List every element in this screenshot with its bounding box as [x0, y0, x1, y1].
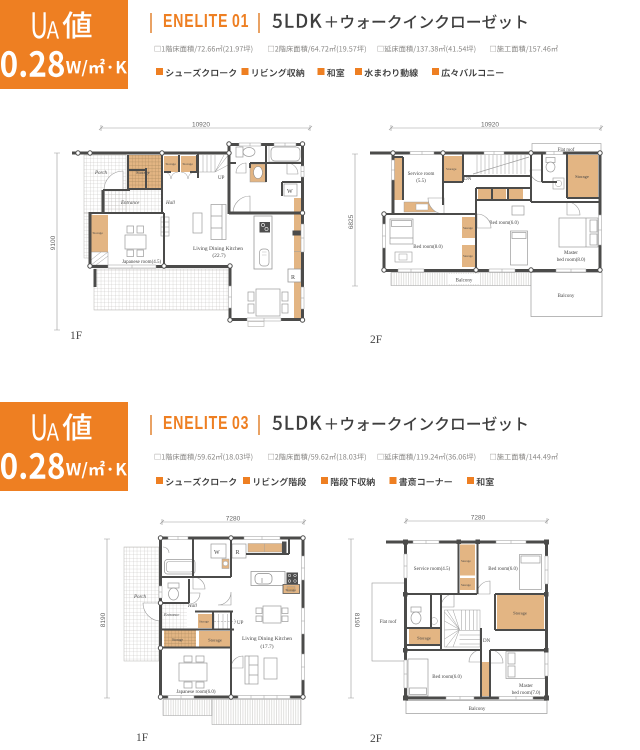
svg-text:Balcony: Balcony — [558, 294, 575, 299]
svg-text:Storage: Storage — [93, 231, 104, 235]
svg-text:Service room(4.5): Service room(4.5) — [414, 567, 451, 572]
svg-text:DN: DN — [464, 177, 472, 182]
svg-text:UP: UP — [218, 176, 225, 181]
svg-text:W: W — [287, 189, 293, 195]
svg-text:W: W — [214, 550, 220, 556]
svg-text:Storage: Storage — [446, 167, 457, 171]
svg-text:Hall: Hall — [165, 201, 176, 206]
svg-text:10920: 10920 — [481, 122, 499, 129]
svg-text:bed room(8.0): bed room(8.0) — [557, 258, 586, 263]
svg-text:2F: 2F — [370, 733, 382, 745]
svg-text:1F: 1F — [136, 732, 148, 744]
svg-text:8190: 8190 — [100, 612, 107, 627]
svg-text:Entrance: Entrance — [163, 612, 179, 617]
svg-text:(17.7): (17.7) — [260, 643, 273, 650]
svg-text:Storage: Storage — [286, 588, 297, 592]
svg-text:Porch: Porch — [133, 595, 147, 600]
svg-text:Living Dining Kitchen: Living Dining Kitchen — [242, 636, 292, 642]
svg-text:Bed room(6.0): Bed room(6.0) — [432, 675, 462, 680]
svg-text:Master: Master — [564, 251, 578, 256]
svg-text:(22.7): (22.7) — [212, 252, 225, 259]
svg-text:Bed room(8.0): Bed room(8.0) — [413, 245, 443, 250]
svg-text:Storage: Storage — [166, 162, 177, 166]
svg-text:Balcony: Balcony — [469, 707, 486, 712]
svg-text:9100: 9100 — [50, 235, 57, 250]
svg-text:Japanese room(6.0): Japanese room(6.0) — [176, 690, 215, 695]
svg-text:7280: 7280 — [471, 515, 486, 522]
svg-text:Storage: Storage — [183, 162, 194, 166]
svg-text:Living Dining Kitchen: Living Dining Kitchen — [193, 246, 243, 252]
svg-text:DN: DN — [483, 639, 491, 644]
svg-text:7280: 7280 — [226, 516, 241, 523]
svg-text:Storage: Storage — [417, 636, 431, 641]
svg-text:Japanese room(4.5): Japanese room(4.5) — [122, 260, 161, 265]
svg-text:UP: UP — [237, 621, 244, 626]
svg-text:Bed room(6.0): Bed room(6.0) — [489, 221, 519, 226]
svg-text:Flat roof: Flat roof — [380, 620, 397, 625]
svg-text:Storage: Storage — [461, 559, 471, 563]
svg-text:(5.5): (5.5) — [416, 179, 426, 184]
svg-text:Storage: Storage — [461, 583, 471, 587]
svg-text:Storage: Storage — [513, 611, 527, 616]
svg-text:Service room: Service room — [408, 172, 435, 177]
svg-text:6825: 6825 — [348, 214, 355, 229]
svg-text:Hall: Hall — [187, 604, 198, 609]
svg-text:2F: 2F — [370, 334, 382, 346]
svg-text:Porch: Porch — [94, 171, 108, 176]
svg-text:10920: 10920 — [192, 122, 210, 129]
svg-text:bed room(7.0): bed room(7.0) — [512, 691, 541, 696]
svg-text:Balcony: Balcony — [456, 279, 473, 284]
svg-text:Storage: Storage — [172, 638, 183, 642]
svg-text:R: R — [236, 550, 240, 556]
svg-text:1F: 1F — [70, 330, 82, 342]
svg-text:R: R — [291, 275, 295, 281]
svg-text:Storage: Storage — [463, 226, 473, 230]
svg-text:Storage: Storage — [463, 254, 473, 258]
svg-text:Storage: Storage — [575, 174, 589, 179]
svg-text:Storage: Storage — [208, 638, 222, 643]
svg-text:Storage: Storage — [199, 620, 209, 624]
svg-text:Bed room(6.0): Bed room(6.0) — [488, 567, 518, 572]
svg-text:Master: Master — [519, 684, 533, 689]
svg-text:Entrance: Entrance — [120, 201, 140, 206]
